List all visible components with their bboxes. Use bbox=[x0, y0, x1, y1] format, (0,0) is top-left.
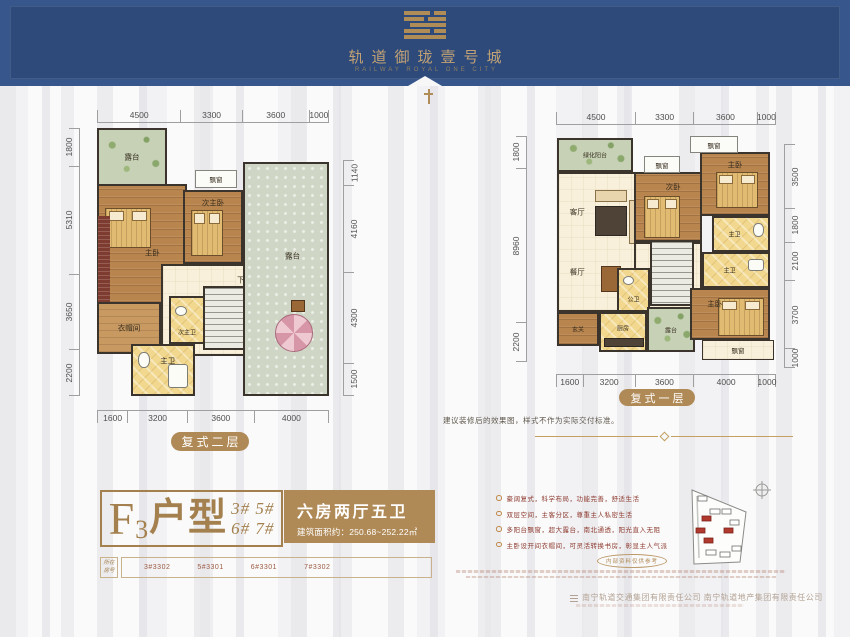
room-count: 六房两厅五卫 bbox=[297, 498, 435, 522]
room-number: 5#3301 bbox=[197, 564, 223, 571]
toilet-icon bbox=[753, 223, 764, 237]
toilet-icon bbox=[138, 352, 150, 368]
wardrobe-icon bbox=[98, 216, 110, 316]
room-bedroom2: 次卧 bbox=[634, 172, 702, 242]
internal-reference-stamp: 内部资料仅供参考 bbox=[597, 554, 667, 568]
umbrella-icon bbox=[275, 314, 313, 352]
bullet-dot-icon bbox=[496, 495, 502, 501]
footer-fine-print bbox=[576, 604, 744, 607]
bay-window-3: 飘窗 bbox=[702, 340, 774, 360]
room-master-bath: 主卫 bbox=[131, 344, 195, 396]
bay-window-1: 飘窗 bbox=[644, 156, 680, 173]
table-icon bbox=[291, 300, 305, 312]
floor-area: 建筑面积约：250.68~252.22㎡ bbox=[297, 526, 435, 538]
room-terrace-top: 露台 bbox=[97, 128, 167, 186]
bathtub-icon bbox=[748, 259, 764, 271]
floorplan-upper-level: 露台 主卧 衣帽间 次主卧 飘窗 次主卫 下 主卫 露 bbox=[95, 126, 337, 398]
diamond-ornament-icon bbox=[659, 432, 669, 442]
room-kitchen: 厨房 bbox=[599, 312, 647, 352]
site-map bbox=[666, 476, 790, 578]
plan-label-upper: 复式二层 bbox=[171, 432, 249, 451]
dimension-row-top: 4500 3300 3600 1000 bbox=[556, 112, 776, 125]
bed-icon bbox=[105, 208, 151, 248]
bed-icon bbox=[718, 298, 764, 336]
room-number-bar: 所在 房号 3#3302 5#3301 6#3301 7#3302 bbox=[100, 557, 432, 578]
room-number-label: 所在 房号 bbox=[100, 557, 118, 578]
kitchen-counter-icon bbox=[604, 338, 644, 347]
cross-ornament-icon bbox=[424, 89, 433, 104]
building-numbers: 3# 5# 6# 7# bbox=[231, 499, 274, 538]
room-master-bath-top: 主卫 bbox=[712, 216, 770, 252]
sink-icon bbox=[623, 276, 634, 285]
gold-divider bbox=[535, 433, 793, 440]
dimension-col-right: 3500 1800 2100 3700 1000 bbox=[784, 144, 795, 368]
footer-company: 南宁轨道交通集团有限责任公司 南宁轨道地产集团有限责任公司 bbox=[582, 592, 823, 603]
brand-subtitle: RAILWAY ROYAL ONE CITY bbox=[0, 67, 850, 73]
floorplan-poster: 轨道御珑壹号城 RAILWAY ROYAL ONE CITY 露台 主卧 衣帽间… bbox=[0, 0, 850, 637]
room-master-bottom: 主卧 bbox=[690, 288, 770, 340]
plan-label-lower: 复式一层 bbox=[619, 389, 695, 406]
room-master-top: 主卧 bbox=[700, 152, 770, 216]
dimension-col-left: 1800 8960 2200 bbox=[516, 136, 527, 362]
bay-window-2: 飘窗 bbox=[690, 136, 738, 153]
selling-point: 豪阔复式，科学布局，功能完善，舒适生活 bbox=[496, 493, 668, 503]
dimension-col-left: 1800 5310 3650 2200 bbox=[69, 128, 80, 396]
selling-point: 主卧设开间衣帽间，可灵活转换书房，彰显主人气派 bbox=[496, 540, 668, 550]
room-green-balcony: 绿化阳台 bbox=[557, 138, 633, 172]
unit-letter: F bbox=[109, 499, 135, 538]
dimension-row-bottom: 1600 3200 3600 4000 bbox=[97, 410, 329, 423]
band-notch bbox=[408, 76, 442, 86]
room-public-bath: 公卫 bbox=[617, 268, 650, 312]
dimension-row-top: 4500 3300 3600 1000 bbox=[97, 110, 329, 123]
unit-type-label: 户型 bbox=[149, 501, 227, 535]
room-entry: 玄关 bbox=[557, 312, 599, 346]
bathtub-icon bbox=[168, 364, 188, 388]
room-terrace-right: 露台 bbox=[243, 162, 329, 396]
room-second-master-bedroom: 次主卧 bbox=[183, 190, 243, 264]
room-master-bath-mid: 主卫 bbox=[702, 252, 770, 288]
bed-icon bbox=[191, 210, 223, 256]
compass-icon bbox=[753, 481, 771, 499]
brand-title: 轨道御珑壹号城 bbox=[0, 46, 850, 67]
room-terrace-small: 露台 bbox=[647, 307, 695, 352]
room-number: 3#3302 bbox=[144, 564, 170, 571]
room-number-values: 3#3302 5#3301 6#3301 7#3302 bbox=[121, 557, 432, 578]
bullet-dot-icon bbox=[496, 511, 502, 517]
unit-type-box: F3户型 3# 5# 6# 7# bbox=[100, 490, 283, 547]
header-band: 轨道御珑壹号城 RAILWAY ROYAL ONE CITY bbox=[0, 0, 850, 86]
room-number: 6#3301 bbox=[251, 564, 277, 571]
brand-logo-icon bbox=[402, 11, 448, 41]
room-number: 7#3302 bbox=[304, 564, 330, 571]
bed-icon bbox=[716, 172, 758, 208]
floorplan-lower-level: 绿化阳台 客厅 餐厅 公卫 上 玄关 厨房 露台 次卧 bbox=[532, 128, 778, 368]
sink-icon bbox=[175, 306, 187, 316]
unit-spec-box: 六房两厅五卫 建筑面积约：250.68~252.22㎡ bbox=[284, 490, 435, 543]
sofa-icon bbox=[595, 190, 627, 202]
footer: 南宁轨道交通集团有限责任公司 南宁轨道地产集团有限责任公司 bbox=[570, 592, 823, 603]
dimension-row-bottom: 1600 3200 3600 4000 1000 bbox=[556, 374, 776, 387]
staircase-up: 上 bbox=[650, 240, 694, 306]
disclaimer-note: 建议装修后的效果图，样式不作为实际交付标准。 bbox=[443, 415, 619, 426]
selling-point: 多阳台飘窗，超大露台，南北通透，阳光直入无阻 bbox=[496, 524, 668, 534]
dimension-col-right: 1140 4160 4300 1500 bbox=[343, 160, 354, 396]
selling-point: 双层空间，主客分区，尊重主人私密生活 bbox=[496, 509, 668, 519]
tea-table-icon bbox=[595, 206, 627, 236]
unit-number: 3 bbox=[135, 517, 148, 543]
selling-points: 豪阔复式，科学布局，功能完善，舒适生活 双层空间，主客分区，尊重主人私密生活 多… bbox=[496, 493, 668, 555]
room-second-master-bath: 次主卫 bbox=[169, 296, 205, 344]
footer-logo-icon bbox=[570, 594, 578, 602]
bullet-dot-icon bbox=[496, 542, 502, 548]
bay-window: 飘窗 bbox=[195, 170, 237, 188]
bed-icon bbox=[644, 196, 680, 238]
bullet-dot-icon bbox=[496, 526, 502, 532]
